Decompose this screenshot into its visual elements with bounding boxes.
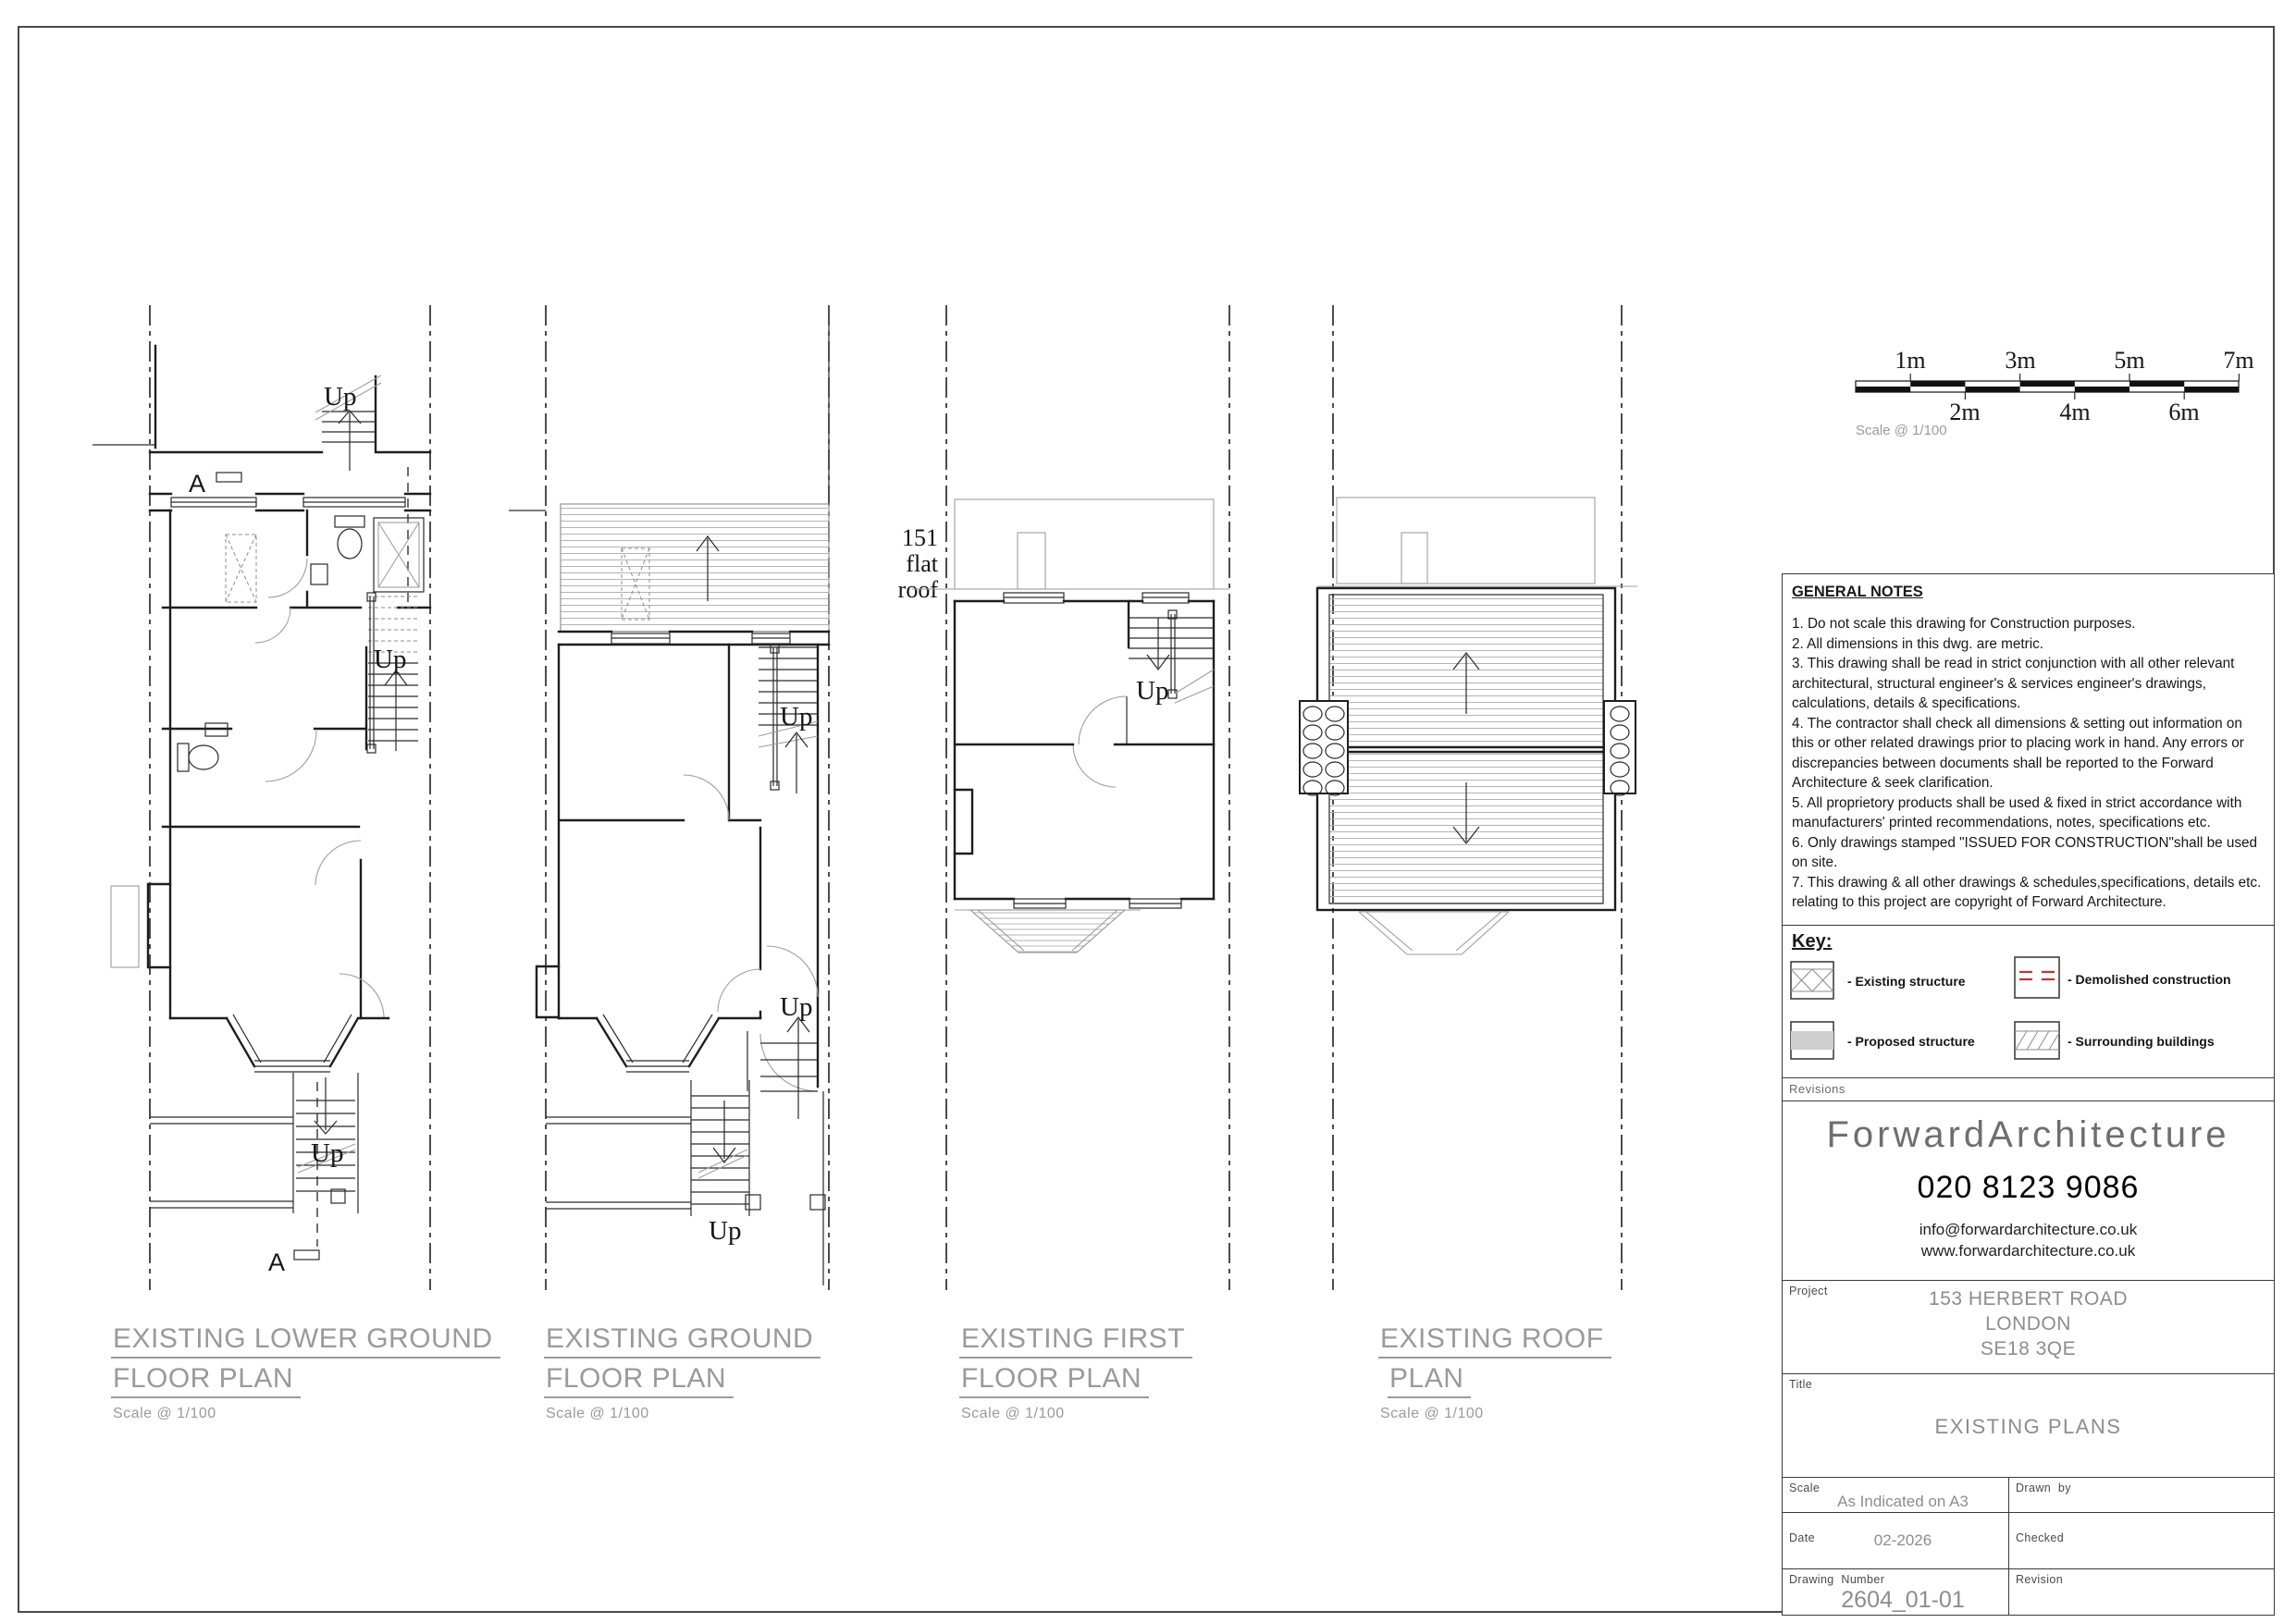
caption-first: EXISTING FIRST FLOOR PLAN Scale @ 1/100 [959, 1325, 1192, 1421]
caption-scale: Scale @ 1/100 [1378, 1407, 1611, 1421]
caption-roof: EXISTING ROOF PLAN Scale @ 1/100 [1378, 1325, 1611, 1421]
chimney-breast [537, 966, 559, 1017]
drawing-number-label: Drawing Number [1789, 1573, 1884, 1586]
drawing-number-value: 2604_01-01 [1810, 1587, 1995, 1614]
scale-value: As Indicated on A3 [1810, 1493, 1995, 1511]
chimney-stack-left [1300, 701, 1348, 795]
bay-roof-outline [1359, 912, 1509, 954]
svg-text:A: A [189, 470, 205, 498]
up-label: Up [324, 382, 356, 412]
svg-text:Up: Up [780, 992, 812, 1022]
svg-text:Up: Up [311, 1138, 343, 1168]
rear-roof-outline [912, 499, 1229, 589]
caption-line: FLOOR PLAN [111, 1365, 301, 1398]
chimney-breast-dashed [226, 535, 256, 602]
caption-line: EXISTING LOWER GROUND [111, 1325, 500, 1359]
neighbour-roof-label: 151 flat roof [898, 524, 939, 603]
chimney-stack-right [1604, 701, 1636, 795]
cell-divider [2008, 1478, 2009, 1513]
key-existing-label: - Existing structure [1847, 974, 1966, 989]
drawn-by-label: Drawn by [2016, 1482, 2071, 1494]
drawing-title: EXISTING PLANS [1783, 1415, 2274, 1439]
svg-text:A: A [268, 1248, 285, 1276]
note-item: 4. The contractor shall check all dimens… [1792, 714, 2263, 793]
scale-bar: 1m 3m 5m 7m 2m 4m 6m Scale @ 1/100 [1836, 333, 2296, 449]
caption-line: PLAN [1388, 1365, 1471, 1398]
stair-up-arrow: Up [324, 382, 361, 471]
drawing-sheet: Up A [0, 0, 2296, 1623]
window [1014, 899, 1181, 908]
project-box: Project 153 HERBERT ROAD LONDON SE18 3QE [1782, 1280, 2275, 1375]
title-box: Title EXISTING PLANS [1782, 1373, 2275, 1479]
svg-text:flat: flat [906, 550, 938, 577]
lower-ground-floor-plan-drawing: Up A [93, 296, 500, 1304]
scale-note: Scale @ 1/100 [1856, 423, 1947, 438]
caption-lower-ground: EXISTING LOWER GROUND FLOOR PLAN Scale @… [111, 1325, 500, 1421]
lightwell-steps: Up [691, 1080, 749, 1246]
number-row: Drawing Number 2604_01-01 Revision [1782, 1568, 2275, 1616]
garden-walls [150, 1117, 293, 1208]
proposed-structure-swatch-icon [1790, 1021, 1834, 1060]
bay-window [170, 1014, 389, 1072]
svg-text:6m: 6m [2168, 399, 2199, 425]
svg-text:Up: Up [780, 702, 812, 732]
checked-label: Checked [2016, 1531, 2064, 1544]
caption-scale: Scale @ 1/100 [111, 1407, 500, 1421]
project-address-line: LONDON [1783, 1311, 2274, 1336]
svg-text:7m: 7m [2223, 347, 2253, 374]
date-value: 02-2026 [1820, 1531, 1986, 1550]
general-notes-heading: GENERAL NOTES [1792, 584, 2263, 601]
key-box: Key: - Existing structure - Demolished c… [1782, 925, 2275, 1079]
chimney-breast [955, 790, 972, 854]
main-roof [1317, 588, 1615, 910]
bay-roof [955, 910, 1141, 953]
note-item: 3. This drawing shall be read in strict … [1792, 654, 2263, 714]
demolished-construction-swatch-icon [2014, 956, 2060, 999]
chimney-breast [111, 884, 170, 967]
existing-structure-swatch-icon [1790, 961, 1834, 1000]
svg-text:Up: Up [709, 1216, 741, 1246]
cell-divider [2008, 1569, 2009, 1615]
company-email: info@forwardarchitecture.co.uk [1783, 1220, 2274, 1241]
revisions-strip: Revisions [1782, 1077, 2275, 1102]
svg-text:151: 151 [902, 524, 938, 551]
project-address-line: 153 HERBERT ROAD [1783, 1286, 2274, 1311]
note-item: 6. Only drawings stamped "ISSUED FOR CON… [1792, 833, 2263, 873]
bay-window [559, 1014, 760, 1072]
front-steps: Up [293, 1073, 358, 1213]
company-website: www.forwardarchitecture.co.uk [1783, 1241, 2274, 1262]
toilet [335, 516, 364, 559]
svg-text:3m: 3m [2005, 347, 2035, 374]
first-floor-plan-drawing: 151 flat roof Up [888, 296, 1277, 1304]
section-marker-a-top: A [189, 467, 408, 609]
revision-label: Revision [2016, 1573, 2063, 1586]
company-phone: 020 8123 9086 [1783, 1170, 2274, 1206]
project-address-line: SE18 3QE [1783, 1336, 2274, 1361]
caption-line: FLOOR PLAN [959, 1365, 1149, 1398]
general-notes-box: GENERAL NOTES 1. Do not scale this drawi… [1782, 573, 2275, 926]
svg-text:5m: 5m [2114, 347, 2144, 374]
key-demolished-label: - Demolished construction [2068, 972, 2231, 987]
company-box: ForwardArchitecture 020 8123 9086 info@f… [1782, 1100, 2275, 1282]
company-logo: ForwardArchitecture [1783, 1114, 2274, 1156]
stair: Up [1129, 601, 1214, 706]
key-proposed-label: - Proposed structure [1847, 1034, 1975, 1049]
note-item: 1. Do not scale this drawing for Constru… [1792, 614, 2263, 634]
entrance-up-arrow: Up [780, 992, 812, 1119]
rear-roof-hatch [561, 504, 829, 632]
note-item: 5. All proprietory products shall be use… [1792, 793, 2263, 833]
revisions-label: Revisions [1789, 1082, 1845, 1096]
stair-mid: Up [367, 593, 418, 753]
note-item: 2. All dimensions in this dwg. are metri… [1792, 634, 2263, 655]
basin [311, 564, 327, 584]
roof-plan-drawing [1286, 296, 1674, 1304]
shower [374, 518, 424, 592]
entrance-steps [747, 1031, 818, 1091]
window [171, 498, 405, 507]
main-stair: Up [759, 645, 818, 793]
rear-roof-outline [1317, 498, 1637, 586]
caption-line: EXISTING ROOF [1378, 1325, 1611, 1359]
svg-text:Up: Up [1136, 676, 1168, 706]
scale-row: Scale As Indicated on A3 Drawn by [1782, 1477, 2275, 1514]
key-surrounding-label: - Surrounding buildings [2068, 1034, 2215, 1049]
date-label: Date [1789, 1531, 1815, 1544]
cell-divider [2008, 1513, 2009, 1569]
caption-scale: Scale @ 1/100 [959, 1407, 1192, 1421]
ground-floor-plan-drawing: Up Up Up [509, 296, 897, 1304]
caption-scale: Scale @ 1/100 [544, 1407, 821, 1421]
key-heading: Key: [1792, 931, 1832, 953]
surrounding-buildings-swatch-icon [2014, 1021, 2060, 1060]
caption-ground: EXISTING GROUND FLOOR PLAN Scale @ 1/100 [544, 1325, 821, 1421]
svg-text:2m: 2m [1949, 399, 1980, 425]
caption-line: FLOOR PLAN [544, 1365, 734, 1398]
caption-line: EXISTING GROUND [544, 1325, 821, 1359]
svg-text:4m: 4m [2059, 399, 2090, 425]
title-label: Title [1789, 1378, 1812, 1391]
garden-walls [546, 1091, 823, 1285]
window [611, 633, 790, 644]
svg-text:Up: Up [374, 645, 406, 674]
note-item: 7. This drawing & all other drawings & s… [1792, 873, 2263, 913]
toilet [178, 744, 218, 771]
svg-text:1m: 1m [1895, 347, 1925, 374]
date-row: Date 02-2026 Checked [1782, 1512, 2275, 1570]
caption-line: EXISTING FIRST [959, 1325, 1192, 1359]
